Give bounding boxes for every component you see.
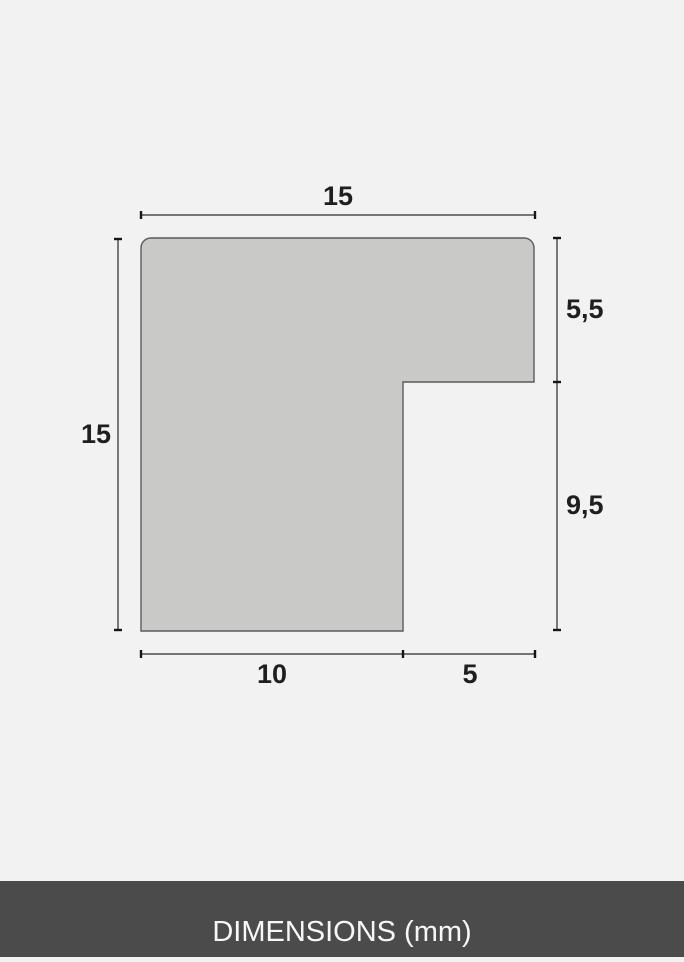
svg-text:10: 10 [257,659,287,689]
svg-text:5: 5 [462,659,477,689]
svg-text:15: 15 [323,181,353,211]
svg-text:5,5: 5,5 [566,294,604,324]
svg-text:9,5: 9,5 [566,490,604,520]
svg-text:15: 15 [81,419,111,449]
